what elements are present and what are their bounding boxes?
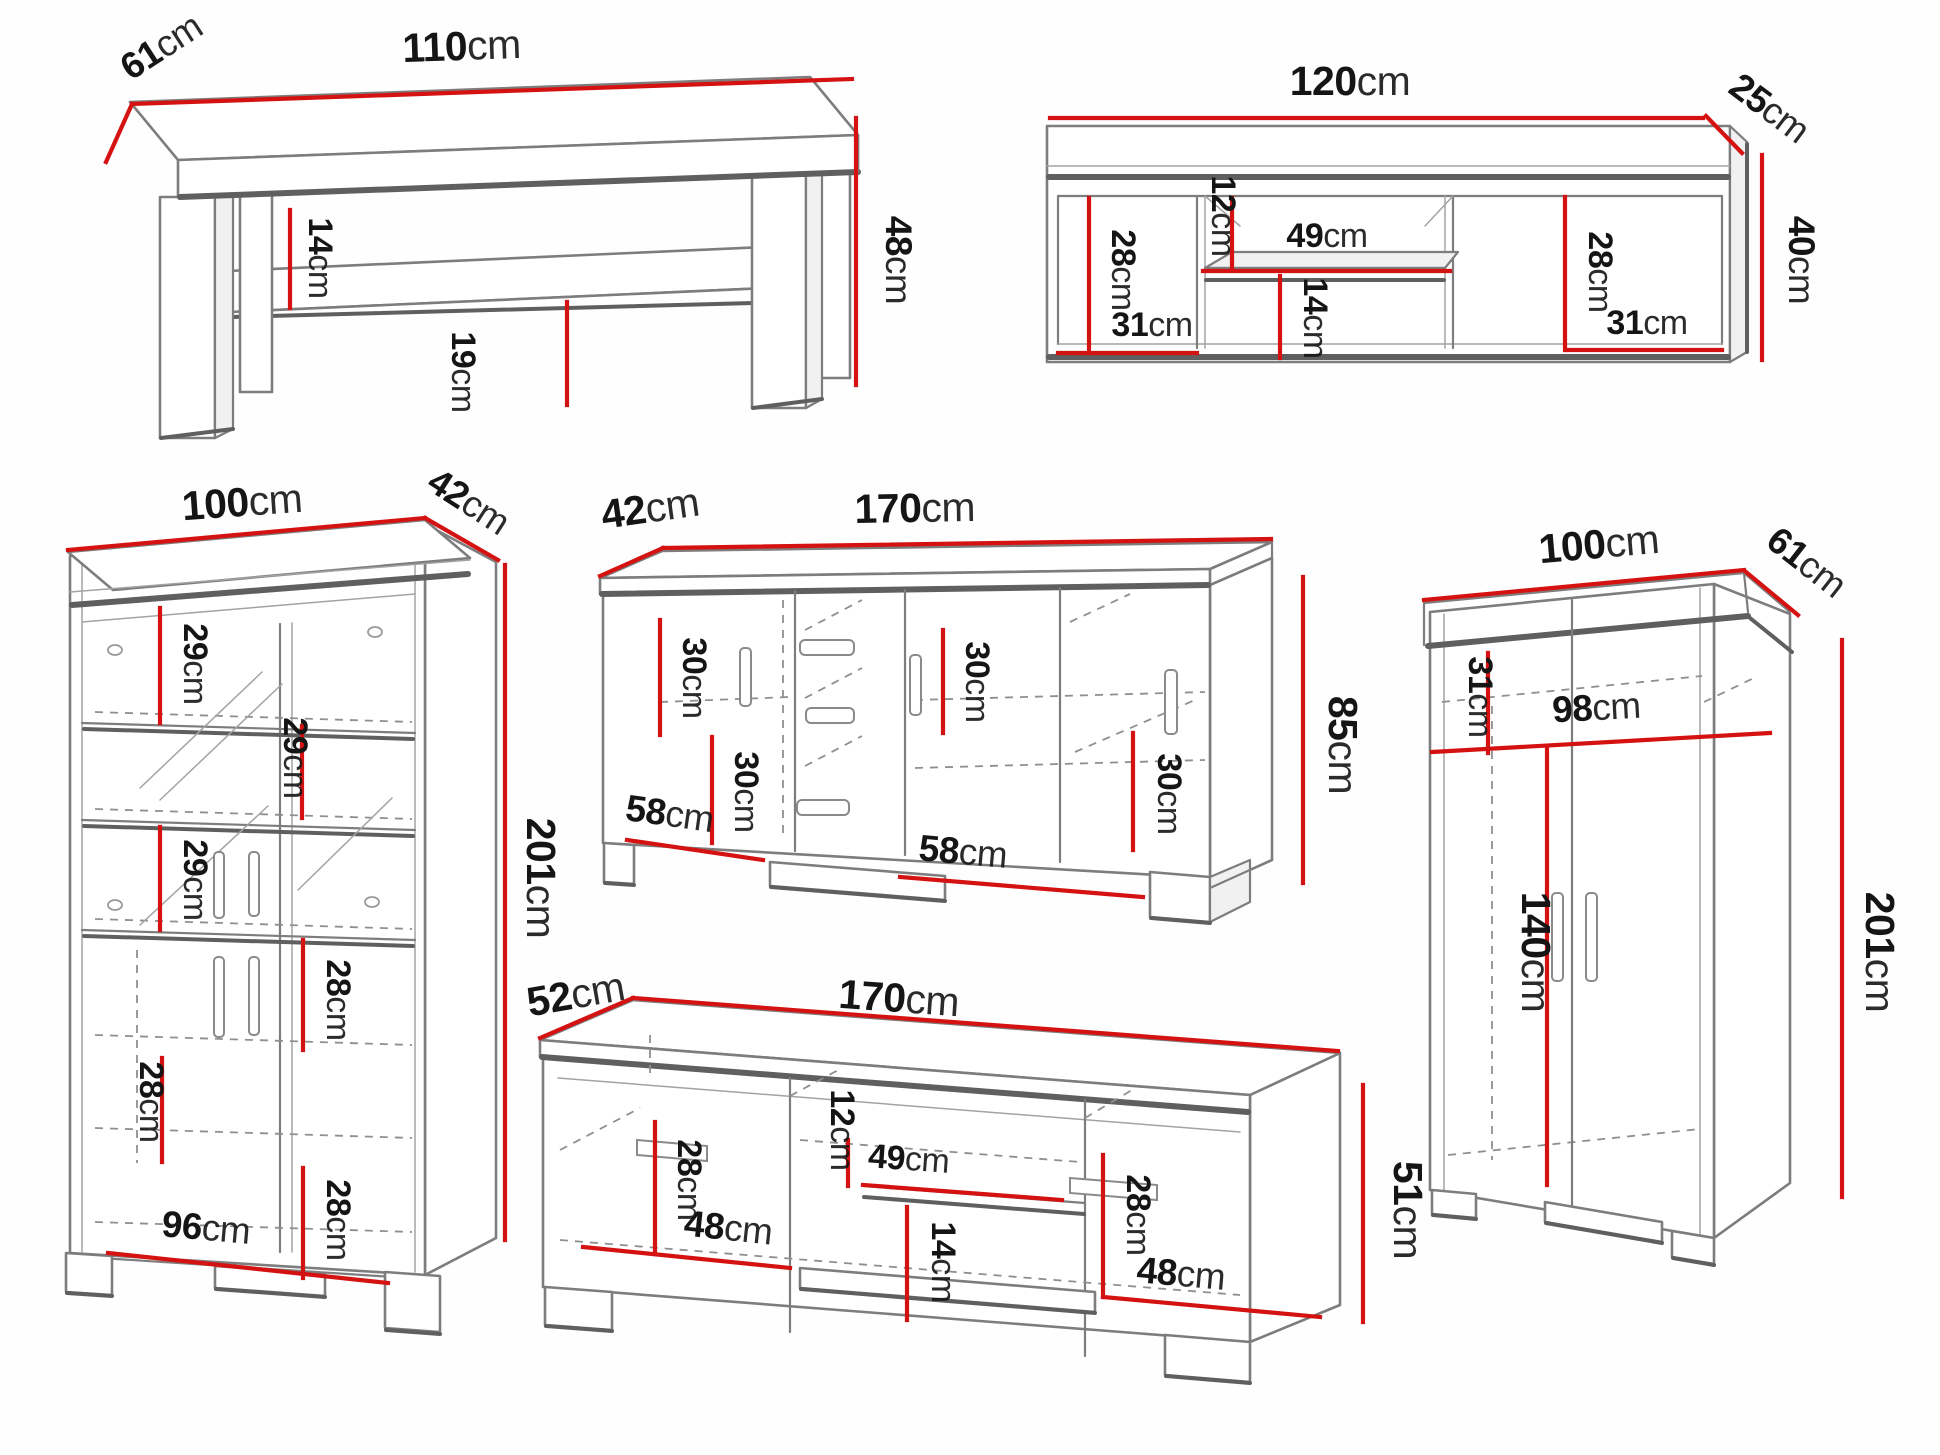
wall-shelf-left-inner-width-label: 31cm <box>1111 306 1192 344</box>
wall-shelf-figure: 120cm 25cm 40cm 28cm 31cm 12cm 49cm 14cm… <box>1047 58 1822 362</box>
wardrobe-width-label: 100cm <box>1537 516 1661 572</box>
coffee-table-depth-label: 61cm <box>113 5 210 88</box>
tv-stand-niche-height-label: 14cm <box>924 1221 962 1302</box>
display-cabinet-shelf3-label: 29cm <box>176 839 214 920</box>
coffee-table-height-label: 48cm <box>878 216 919 304</box>
coffee-table-shelf-height-label: 19cm <box>444 331 482 412</box>
display-cabinet-drawing <box>66 520 496 1334</box>
coffee-table-width-label: 110cm <box>402 21 522 71</box>
wardrobe-inner-width-label: 98cm <box>1551 685 1642 731</box>
wall-shelf-width-label: 120cm <box>1290 58 1411 104</box>
wall-shelf-niche-width-label: 49cm <box>1286 217 1367 255</box>
coffee-table-figure: 61cm 110cm 14cm 48cm 19cm <box>106 5 919 438</box>
display-cabinet-width-label: 100cm <box>180 475 303 529</box>
coffee-table-drawing <box>130 77 858 438</box>
wall-shelf-left-inner-height-label: 28cm <box>1104 229 1142 310</box>
wardrobe-figure: 100cm 61cm 31cm 98cm 140cm 201cm <box>1424 516 1903 1265</box>
tv-stand-figure: 52cm 170cm 51cm 28cm 48cm 12cm 49cm 14cm… <box>523 963 1431 1383</box>
sideboard-left-bottom-label: 30cm <box>727 751 765 832</box>
wardrobe-height-label: 201cm <box>1857 892 1903 1013</box>
sideboard-width-label: 170cm <box>854 484 975 532</box>
sideboard-figure: 42cm 170cm 85cm 30cm 30cm 30cm 30cm 58cm… <box>598 479 1366 923</box>
wardrobe-door-height-label: 140cm <box>1513 892 1559 1013</box>
display-cabinet-shelf2-label: 29cm <box>276 717 314 798</box>
wall-shelf-height-label: 40cm <box>1781 216 1822 304</box>
tv-stand-width-label: 170cm <box>837 971 960 1025</box>
diagram-canvas: 61cm 110cm 14cm 48cm 19cm <box>0 0 1940 1455</box>
display-cabinet-section5-label: 28cm <box>132 1061 170 1142</box>
sideboard-height-label: 85cm <box>1320 696 1366 794</box>
sideboard-left-top-label: 30cm <box>675 637 713 718</box>
display-cabinet-figure: 100cm 42cm 201cm 29cm 29cm 29cm 28cm 28c… <box>66 460 564 1334</box>
wall-shelf-top-gap-label: 12cm <box>1204 175 1242 256</box>
display-cabinet-section4-label: 28cm <box>319 959 357 1040</box>
display-cabinet-section6-label: 28cm <box>319 1179 357 1260</box>
wall-shelf-niche-height-label: 14cm <box>1296 277 1334 358</box>
tv-stand-right-door-width-label: 48cm <box>1135 1249 1227 1298</box>
furniture-dimensions-diagram: 61cm 110cm 14cm 48cm 19cm <box>0 0 1940 1455</box>
display-cabinet-shelf1-label: 29cm <box>176 623 214 704</box>
tv-stand-height-label: 51cm <box>1385 1161 1431 1259</box>
coffee-table-shelf-clearance-label: 14cm <box>301 217 339 298</box>
sideboard-right-door-width-label: 58cm <box>917 827 1009 876</box>
sideboard-right-top-label: 30cm <box>958 641 996 722</box>
wall-shelf-right-inner-width-label: 31cm <box>1606 304 1687 342</box>
wardrobe-top-section-height-label: 31cm <box>1461 656 1499 737</box>
tv-stand-top-gap-label: 12cm <box>823 1089 861 1170</box>
sideboard-depth-label: 42cm <box>598 479 702 538</box>
wall-shelf-right-inner-height-label: 28cm <box>1581 231 1619 312</box>
display-cabinet-height-label: 201cm <box>518 818 564 939</box>
tv-stand-niche-width-label: 49cm <box>867 1137 951 1181</box>
display-cabinet-base-width-label: 96cm <box>160 1203 252 1252</box>
sideboard-right-bottom-label: 30cm <box>1150 753 1188 834</box>
tv-stand-right-inner-height-label: 28cm <box>1119 1174 1157 1255</box>
